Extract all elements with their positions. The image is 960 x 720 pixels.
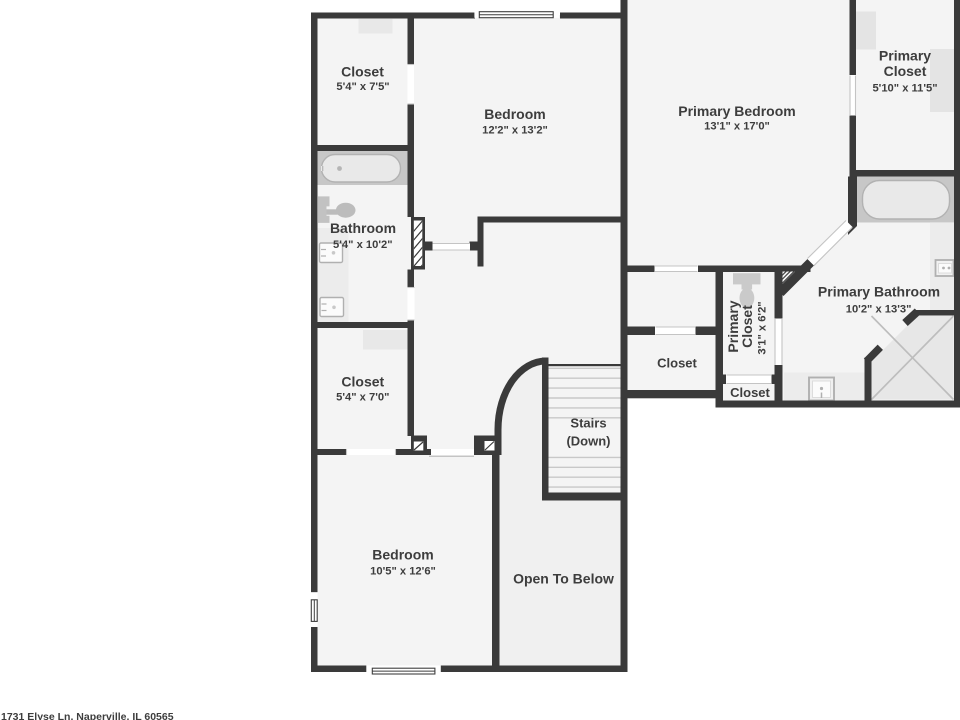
svg-text:10'5" x 12'6": 10'5" x 12'6"	[370, 565, 436, 577]
svg-text:Bedroom: Bedroom	[372, 546, 433, 562]
svg-text:Primary Bedroom: Primary Bedroom	[678, 103, 795, 119]
svg-text:3'1" x 6'2": 3'1" x 6'2"	[756, 301, 768, 354]
svg-text:1731 Elyse Ln, Naperville, IL: 1731 Elyse Ln, Naperville, IL 60565	[1, 711, 174, 720]
svg-text:Closet: Closet	[884, 63, 927, 79]
svg-text:5'4" x 10'2": 5'4" x 10'2"	[333, 239, 392, 251]
svg-text:13'1" x 17'0": 13'1" x 17'0"	[704, 121, 770, 133]
svg-text:Closet: Closet	[739, 305, 755, 348]
svg-text:Primary Bathroom: Primary Bathroom	[818, 284, 940, 300]
svg-text:Stairs: Stairs	[570, 415, 606, 430]
svg-text:10'2" x 13'3": 10'2" x 13'3"	[846, 303, 912, 315]
svg-text:5'10" x 11'5": 5'10" x 11'5"	[872, 83, 937, 95]
svg-text:Closet: Closet	[657, 356, 697, 371]
svg-text:Closet: Closet	[341, 64, 384, 80]
svg-text:Open To Below: Open To Below	[513, 571, 614, 587]
svg-text:Closet: Closet	[341, 374, 384, 390]
svg-text:Bathroom: Bathroom	[330, 220, 396, 236]
svg-text:(Down): (Down)	[566, 433, 610, 448]
svg-text:12'2" x 13'2": 12'2" x 13'2"	[482, 125, 548, 137]
svg-text:Primary: Primary	[879, 48, 931, 64]
svg-text:5'4" x 7'5": 5'4" x 7'5"	[336, 81, 389, 93]
svg-text:5'4" x 7'0": 5'4" x 7'0"	[336, 391, 389, 403]
svg-text:Bedroom: Bedroom	[484, 106, 545, 122]
svg-text:Closet: Closet	[730, 385, 770, 400]
